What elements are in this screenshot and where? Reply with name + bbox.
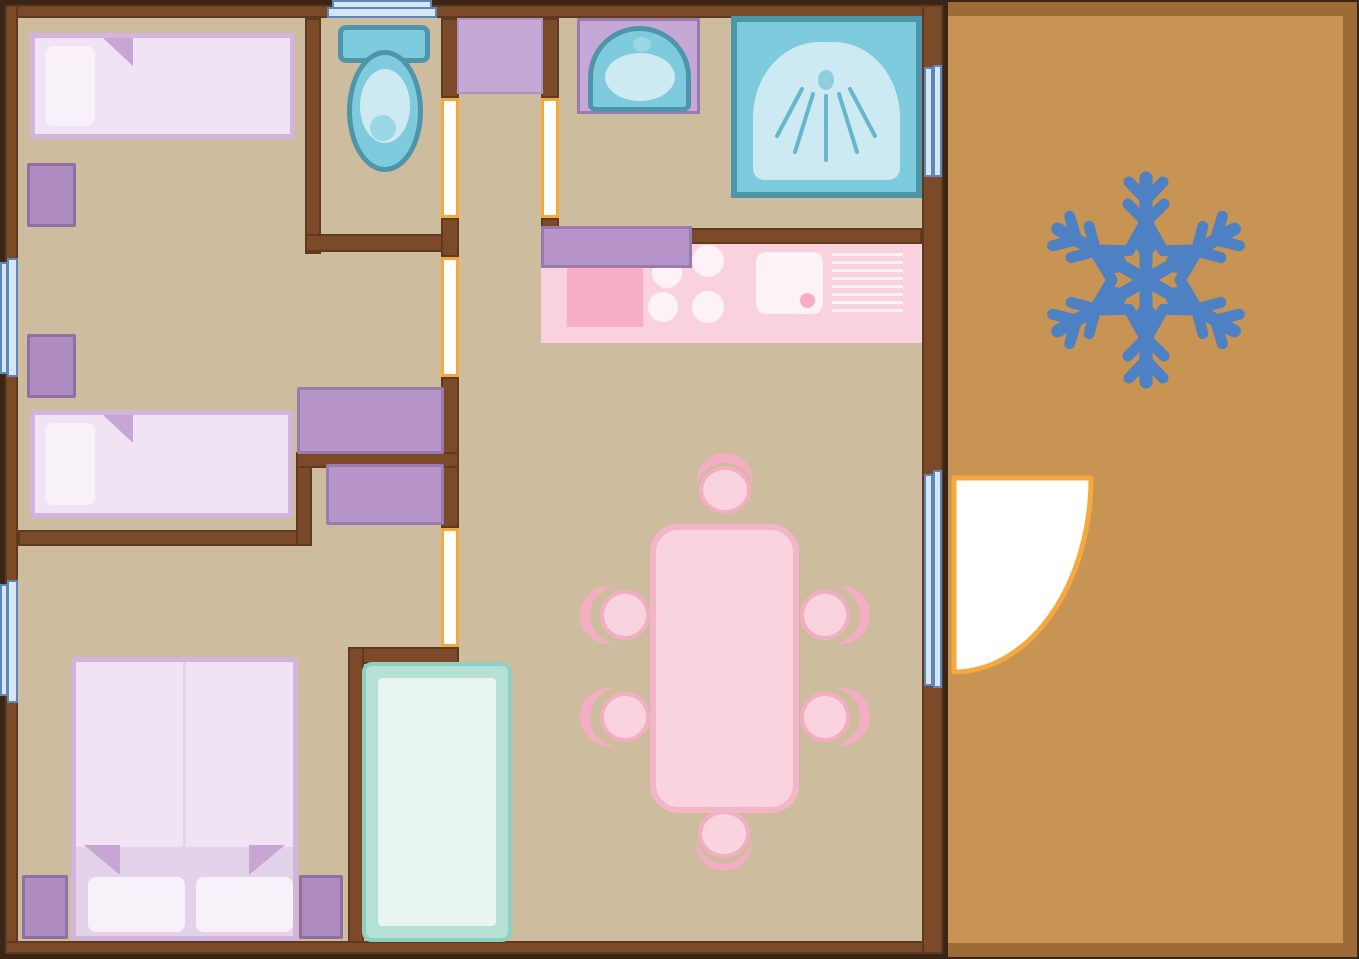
hall-cabinet: [457, 18, 543, 94]
door-wc: [441, 98, 459, 218]
window-left1-inner: [7, 258, 18, 377]
nightstand-3: [22, 875, 68, 939]
glass-door-outer: [924, 474, 933, 686]
wall-wc-left: [305, 18, 321, 254]
floor-plan: [0, 0, 1359, 959]
hob-plate: [567, 266, 643, 327]
drainboard: [832, 253, 903, 313]
single-bed-2: [30, 410, 293, 518]
wall-bottom: [5, 941, 943, 954]
kitchen-worktop: [541, 226, 692, 268]
chair-bottom-seat: [698, 810, 750, 858]
blanket-fold-right: [249, 845, 285, 875]
kitchen-sink-drain: [800, 293, 815, 308]
door-swing-arc: [948, 468, 1108, 688]
chair-left2-seat: [600, 692, 650, 742]
pillow-left: [88, 877, 185, 932]
window-right-inner: [933, 65, 942, 177]
door-bedroom-mid: [441, 257, 459, 377]
toilet-bowl: [347, 50, 423, 172]
snowflake-icon: [1036, 164, 1256, 390]
wall-left: [5, 5, 18, 954]
sink-faucet: [633, 37, 651, 52]
toilet-drain: [370, 115, 396, 141]
burner-2: [692, 245, 724, 277]
window-top-inner: [327, 7, 437, 18]
chair-left1-seat: [600, 590, 650, 640]
wall-bedroom-divider: [18, 530, 307, 546]
wardrobe-1: [297, 387, 444, 454]
shower-spray-icon: [749, 44, 904, 180]
door-bedroom-bottom: [441, 528, 459, 647]
wardrobe-2: [326, 464, 444, 525]
pillow-right: [196, 877, 293, 932]
sink-basin: [605, 53, 675, 101]
nightstand-1: [27, 163, 76, 227]
burner-3: [648, 292, 678, 322]
blanket-seam: [183, 662, 186, 847]
chair-right2-seat: [800, 692, 850, 742]
window-left2-inner: [7, 580, 18, 703]
pillow: [45, 423, 95, 505]
nightstand-2: [27, 334, 76, 398]
burner-4: [692, 291, 724, 323]
nightstand-4: [299, 875, 343, 939]
double-bed: [71, 657, 298, 941]
tall-wardrobe-front: [378, 678, 496, 926]
single-bed-1: [30, 33, 295, 139]
window-right-outer: [924, 67, 933, 177]
chair-right1-seat: [800, 590, 850, 640]
wall-core-seg2: [441, 218, 459, 257]
shower: [731, 16, 922, 198]
wall-bath-seg1: [541, 18, 559, 98]
tall-wardrobe: [362, 662, 512, 942]
pillow: [45, 46, 95, 126]
blanket-fold-left: [84, 845, 120, 875]
chair-top-seat: [699, 466, 751, 514]
glass-door-inner: [933, 470, 942, 688]
dining-table: [650, 524, 799, 813]
wall-wc-bottom: [305, 234, 459, 252]
door-bathroom: [541, 98, 559, 218]
